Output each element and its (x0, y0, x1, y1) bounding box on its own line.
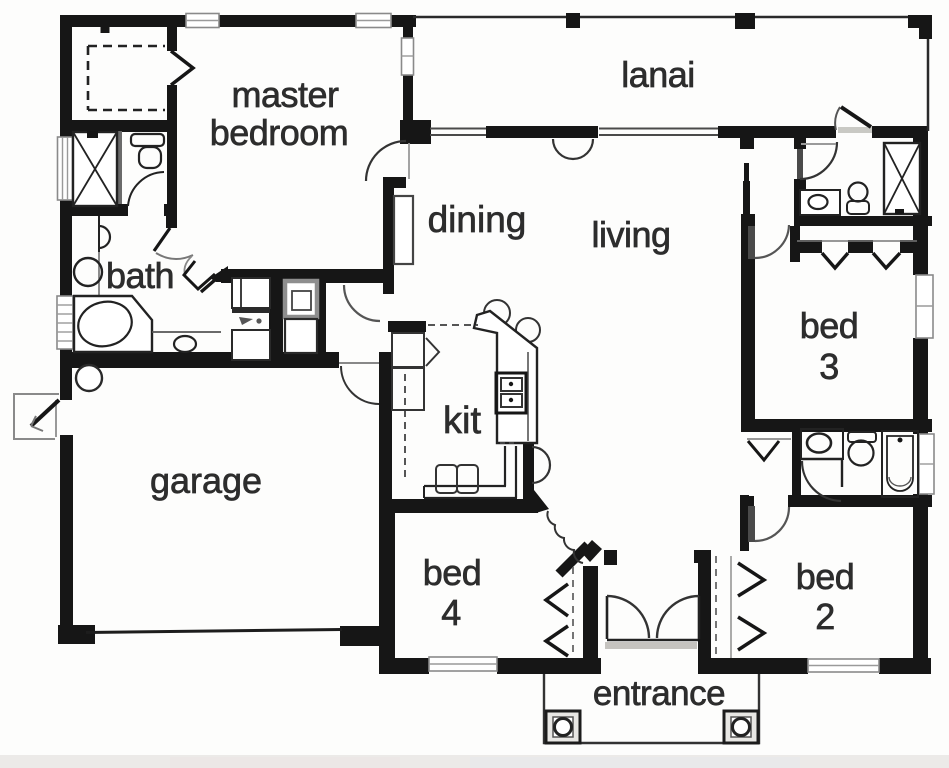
svg-text:bath: bath (106, 255, 174, 296)
svg-text:kit: kit (443, 400, 481, 442)
svg-text:bed: bed (423, 552, 482, 593)
svg-text:lanai: lanai (621, 54, 695, 95)
svg-text:dining: dining (428, 199, 527, 240)
svg-text:4: 4 (441, 592, 461, 633)
svg-text:3: 3 (819, 346, 839, 387)
svg-text:bedroom: bedroom (210, 112, 349, 153)
svg-text:entrance: entrance (593, 674, 725, 713)
svg-text:living: living (591, 214, 670, 255)
svg-text:master: master (231, 74, 339, 115)
svg-text:2: 2 (815, 596, 835, 637)
svg-text:garage: garage (150, 460, 262, 501)
svg-text:bed: bed (800, 305, 859, 346)
svg-text:bed: bed (796, 556, 855, 597)
